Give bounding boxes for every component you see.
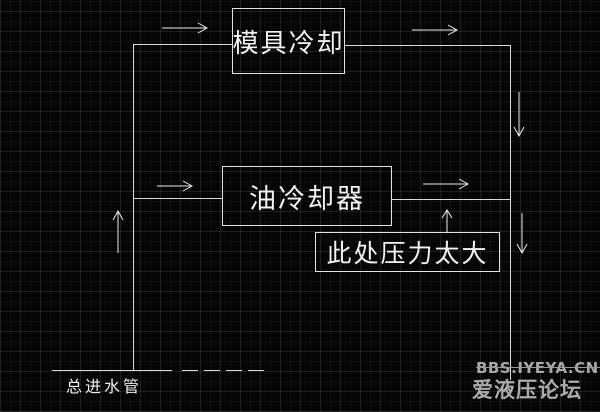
flow-arrow-right-icon [423,178,470,190]
node-mold-cooling: 模具冷却 [232,8,345,74]
pipe-right-riser [510,45,511,380]
pipe-top-right-segment [345,45,510,46]
flow-arrow-up-icon [441,208,453,232]
pipe-main-inlet-dashed-line [182,370,264,371]
flow-arrow-right-icon [157,180,194,192]
flow-arrow-down-icon [516,213,528,255]
node-oil-cooler: 油冷却器 [222,166,392,226]
flow-arrow-right-icon [162,22,209,34]
pipe-left-riser [133,44,134,370]
pipe-mid-left-segment [133,198,222,199]
pipe-mid-right-segment [392,199,510,200]
watermark-forum-name: 爱液压论坛 [472,374,582,404]
flow-arrow-right-icon [412,24,459,36]
watermark-strike-line [476,367,600,368]
cad-drawing-canvas: 模具冷却 油冷却器 此处压力太大 总进水管 BBS.IYEYA.CN 爱液压论坛 [0,0,600,412]
node-oil-cooler-label: 油冷却器 [249,177,365,216]
node-pressure-warning: 此处压力太大 [315,232,500,272]
main-water-inlet-label: 总进水管 [66,373,142,397]
pipe-top-left-segment [133,44,232,45]
pipe-main-inlet-line [52,370,172,371]
flow-arrow-up-icon [112,209,124,253]
node-pressure-warning-label: 此处压力太大 [326,234,488,270]
node-mold-cooling-label: 模具冷却 [233,23,345,60]
flow-arrow-down-icon [513,92,525,138]
